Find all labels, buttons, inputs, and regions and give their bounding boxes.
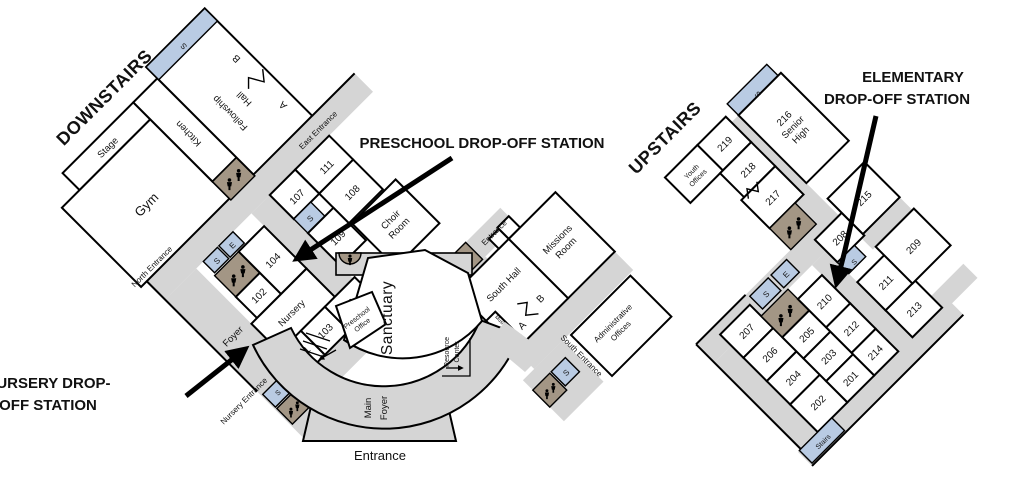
main-foyer-label: Main	[363, 398, 374, 419]
nursery-arrow-icon	[186, 350, 244, 396]
resource-center-label: Resource	[444, 337, 451, 367]
elementary-dropoff-label: DROP-OFF STATION	[824, 91, 970, 108]
nursery-entrance-label: Nursery Entrance	[219, 376, 270, 427]
main-foyer-label: Foyer	[379, 396, 390, 420]
sanctuary-label: Sanctuary	[379, 281, 396, 355]
nursery-dropoff-label: OFF STATION	[0, 397, 97, 414]
main-entrance-label: Entrance	[354, 448, 406, 463]
church-floorplan-map: DOWNSTAIRS Stage Gym Kitchen Fellowship …	[0, 0, 1024, 495]
floorplan-svg: DOWNSTAIRS Stage Gym Kitchen Fellowship …	[0, 0, 1024, 495]
resource-center-label: Center	[454, 341, 461, 363]
elementary-dropoff-label: ELEMENTARY	[862, 69, 964, 86]
nursery-dropoff-label: NURSERY DROP-	[0, 375, 111, 392]
preschool-dropoff-label: PRESCHOOL DROP-OFF STATION	[359, 135, 604, 152]
